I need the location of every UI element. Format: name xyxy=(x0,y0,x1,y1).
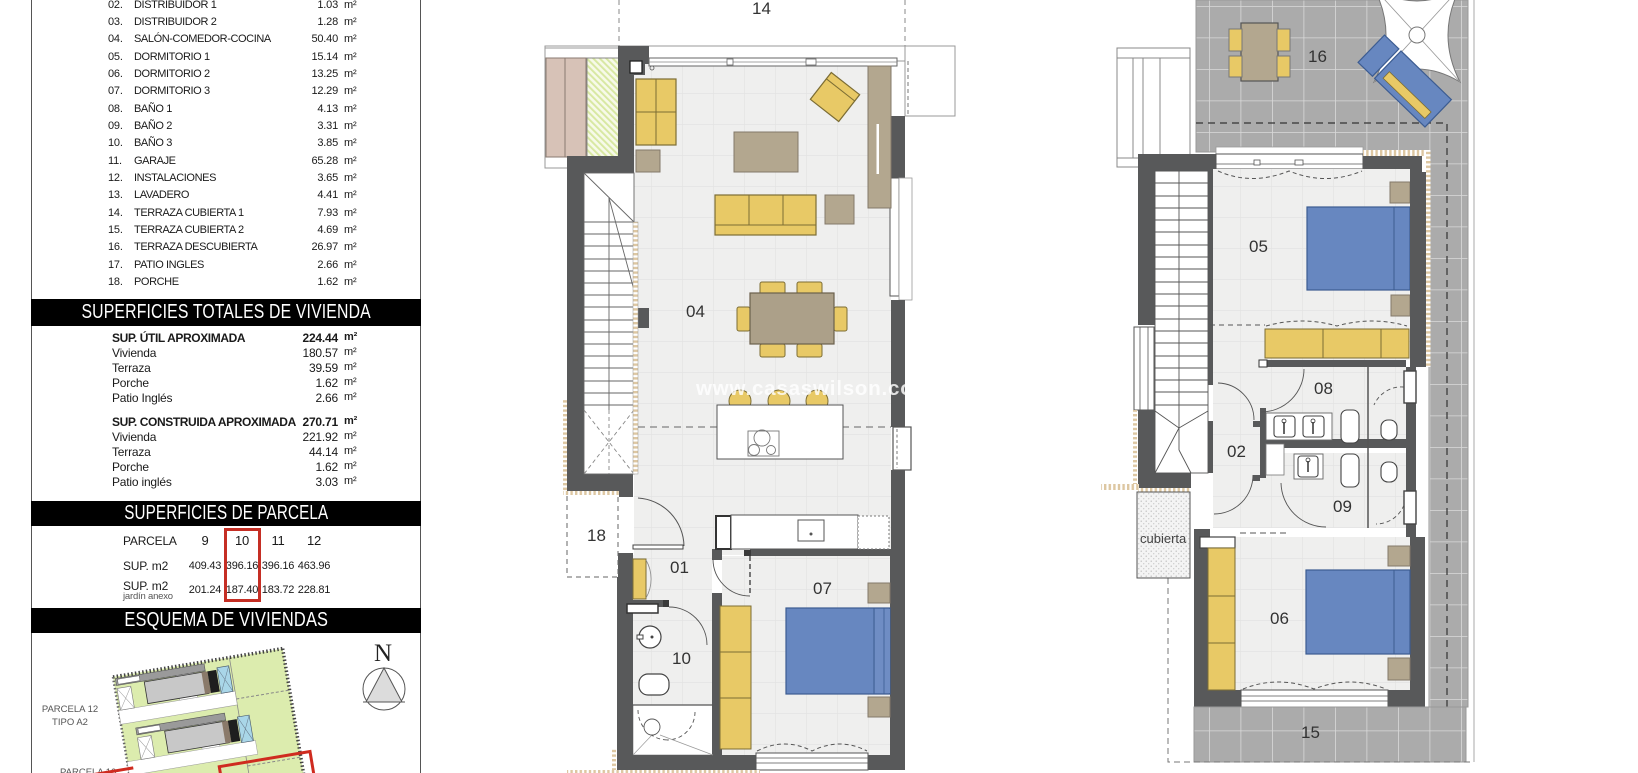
svg-text:09: 09 xyxy=(1333,497,1352,516)
svg-text:02: 02 xyxy=(1227,442,1246,461)
svg-text:www.casaswilson.co: www.casaswilson.co xyxy=(695,377,914,400)
svg-text:04: 04 xyxy=(686,302,705,321)
svg-text:15: 15 xyxy=(1301,723,1320,742)
svg-text:10: 10 xyxy=(672,649,691,668)
svg-text:08: 08 xyxy=(1314,379,1333,398)
svg-text:cubierta: cubierta xyxy=(1140,531,1187,546)
svg-text:06: 06 xyxy=(1270,609,1289,628)
svg-text:01: 01 xyxy=(670,558,689,577)
svg-text:07: 07 xyxy=(813,579,832,598)
svg-text:N: N xyxy=(374,640,392,667)
svg-text:16: 16 xyxy=(1308,47,1327,66)
svg-text:18: 18 xyxy=(587,526,606,545)
svg-text:05: 05 xyxy=(1249,237,1268,256)
svg-text:14: 14 xyxy=(752,0,771,18)
